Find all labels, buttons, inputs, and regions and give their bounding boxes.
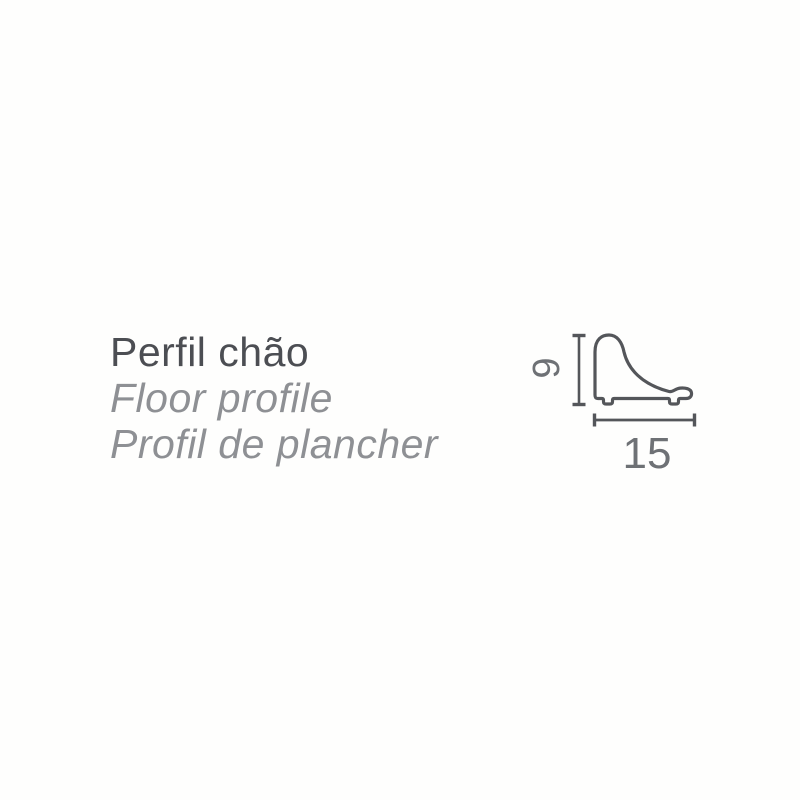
product-sheet: Perfil chão Floor profile Profil de plan… [0,0,800,800]
product-name-portuguese: Perfil chão [110,329,438,375]
height-dimension-label: 9 [527,346,567,390]
profile-outline [595,335,692,404]
width-dimension-label: 15 [607,431,687,477]
product-name-english: Floor profile [110,375,438,421]
product-name-block: Perfil chão Floor profile Profil de plan… [110,329,438,467]
height-dimension-line [573,336,586,405]
width-dimension-line [595,414,695,427]
profile-diagram: 9 15 [522,325,712,480]
product-name-french: Profil de plancher [110,421,438,467]
